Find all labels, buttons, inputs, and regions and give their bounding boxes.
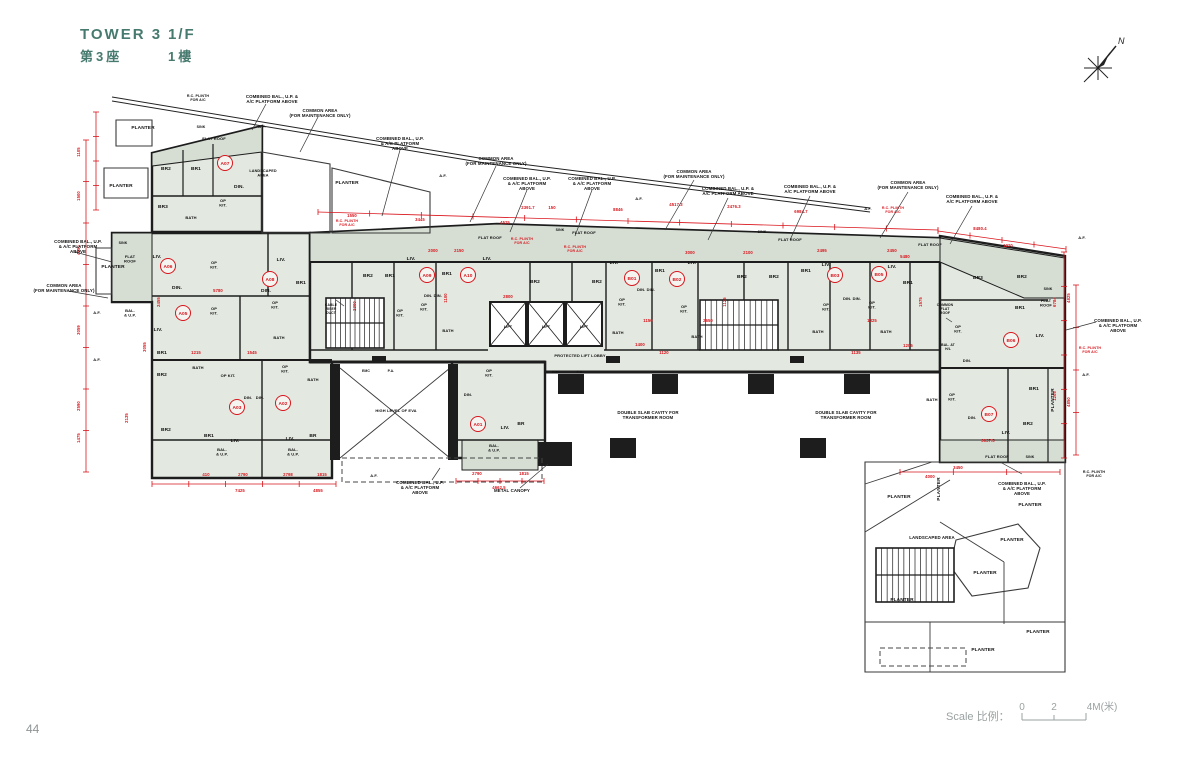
room-label: BAL.& U.P. — [216, 447, 228, 457]
unit-number-b02: B02 — [672, 277, 681, 283]
annotation-note: A.F. — [370, 473, 378, 478]
room-label: OPKIT. — [948, 392, 956, 402]
room-label: DIN. — [244, 395, 252, 400]
annotation-note: CABLERISERDUCT — [325, 303, 338, 315]
room-label: PLANTER — [1018, 502, 1042, 508]
room-label: DIN. — [172, 285, 182, 291]
room-label: BR1 — [903, 280, 913, 286]
room-label: BR3 — [973, 275, 983, 281]
room-label: EMC — [552, 370, 560, 374]
planter-outline — [116, 120, 152, 146]
room-label: DIN. — [256, 395, 264, 400]
dimension-text: 3059 — [76, 325, 81, 335]
hatched-pier — [558, 374, 584, 394]
planter-outline — [104, 168, 148, 198]
annotation-note: HIGH LEVEL OF EVA — [375, 408, 416, 413]
room-label: SINK — [758, 230, 767, 234]
page-number: 44 — [26, 722, 39, 736]
room-label: DIN. — [968, 415, 976, 420]
room-label: FLAT ROOF — [918, 242, 942, 247]
annotation-note: LANDSCAPED AREA — [909, 535, 955, 540]
room-label: OP KIT. — [221, 373, 236, 378]
dimension-text: 2300 — [352, 301, 357, 311]
scale-bar: Scale 比例： 0 2 4M(米) — [946, 700, 1164, 726]
room-label: BATH — [185, 215, 196, 220]
annotation-note: COMBINED BAL., U.P.& A/C PLATFORMABOVE — [376, 136, 424, 151]
dimension-text: 4855 — [313, 488, 323, 493]
dimension-text: 1815 — [519, 471, 529, 476]
room-label: LIV. — [501, 425, 510, 431]
room-label: DIN. — [234, 184, 244, 190]
annotation-note: A.F. — [439, 173, 447, 178]
dimension-text: 2798 — [283, 472, 293, 477]
unit-number-a03: A03 — [232, 405, 241, 411]
room-label: BR2 — [769, 274, 779, 280]
room-label: OPKIT. — [420, 302, 428, 312]
dimension-text: 1545 — [247, 350, 257, 355]
dimension-text: 2150 — [454, 248, 464, 253]
room-label: PLANTER — [1050, 388, 1056, 412]
hatched-pier — [844, 374, 870, 394]
room-label: BAL.& U.P. — [124, 308, 136, 318]
annotation-note: COMBINED BAL., U.P. &A/C PLATFORM ABOVE — [246, 94, 299, 104]
room-label: PLANTER — [1000, 537, 1024, 543]
room-label: FLAT ROOF — [778, 237, 802, 242]
annotation-note: COMMON AREA(FOR MAINTENANCE ONLY) — [877, 180, 939, 190]
scale-tick-2: 2 — [1051, 702, 1057, 713]
annotation-note: COMBINED BAL., U.P.& A/C PLATFORMABOVE — [998, 481, 1046, 496]
unit-number-a05: A05 — [178, 311, 187, 317]
room-label: BR2 — [1023, 421, 1033, 427]
dimension-text: 7425 — [235, 488, 245, 493]
hatched-pier — [330, 364, 340, 460]
room-label: FLATROOF — [1040, 298, 1052, 308]
rc-plinth-note: R.C. PLINTHFOR A/C — [882, 206, 905, 214]
room-label: PLANTER — [335, 180, 359, 186]
dimension-text: 8846 — [613, 207, 623, 212]
hatched-pier — [372, 356, 386, 363]
dimension-text: 3055 — [142, 342, 147, 352]
room-label: DIN. — [261, 288, 271, 294]
dimension-text: 1500 — [76, 191, 81, 201]
room-label: BR2 — [157, 372, 167, 378]
room-label: OPKIT. — [868, 300, 876, 310]
room-label: OPKIT. — [822, 302, 830, 312]
hatched-pier — [538, 442, 572, 466]
planter-outline — [96, 248, 112, 294]
room-label: SINK — [197, 125, 206, 129]
unit-number-a02: A02 — [278, 401, 287, 407]
room-label: BR1 — [442, 271, 452, 277]
room-label: P.A. — [577, 370, 584, 374]
dimension-text: 1550 — [347, 213, 357, 218]
annotation-note: COMBINED BAL., U.P. &A/C PLATFORM ABOVE — [784, 184, 837, 194]
room-label: BR1 — [157, 350, 167, 356]
room-label: FLATROOF — [124, 254, 136, 264]
room-label: BR2 — [161, 166, 171, 172]
dimension-text: 2450 — [887, 248, 897, 253]
annotation-note: COMBINED BAL., U.P.& A/C PLATFORMABOVE — [568, 176, 616, 191]
dimension-text: 2391.7 — [521, 205, 535, 210]
dimension-text: 1325 — [867, 318, 877, 323]
room-label: FLAT ROOF — [572, 230, 596, 235]
room-label: BATH — [812, 329, 823, 334]
room-label: BR1 — [1015, 305, 1025, 311]
annotation-note: COMBINED BAL., U.P.& A/C PLATFORMABOVE — [1094, 318, 1142, 333]
dimension-text: 2590 — [76, 401, 81, 411]
room-label: LIV. — [483, 256, 492, 262]
lifts — [490, 302, 602, 346]
room-label: OPKIT. — [281, 364, 289, 374]
annotation-note: DOUBLE SLAB CAVITY FORTRANSFORMER ROOM — [617, 410, 679, 420]
room-label: LIFT — [504, 325, 513, 329]
room-label: PLANTER — [973, 570, 997, 576]
annotation-note: A.F. — [635, 196, 643, 201]
dimension-text: 8480.4 — [973, 226, 987, 231]
room-label: BATH — [442, 328, 453, 333]
dimension-text: 410 — [202, 472, 210, 477]
planter-outline — [262, 152, 330, 233]
room-label: BR2 — [161, 427, 171, 433]
room-label: OPKIT. — [618, 297, 626, 307]
room-label: BATH — [880, 329, 891, 334]
dimension-text: 2790 — [472, 471, 482, 476]
room-label: BR1 — [385, 273, 395, 279]
dimension-text: 2100 — [743, 250, 753, 255]
room-label: FLAT ROOF — [478, 235, 502, 240]
dimension-text: 1105 — [76, 147, 81, 157]
dashed-outline — [880, 648, 966, 666]
dimension-text: 2455 — [156, 297, 161, 307]
room-label: LIFT — [580, 325, 589, 329]
dimension-text: 1475 — [76, 433, 81, 443]
room-label: EMC — [362, 369, 370, 373]
flat-roof-band — [462, 440, 538, 470]
annotation-note: A.F. — [1078, 235, 1086, 240]
room-label: BR2 — [363, 273, 373, 279]
room-label: BR — [309, 433, 317, 439]
annotation-note: COMBINED BAL., U.P.& A/C PLATFORMABOVE — [503, 176, 551, 191]
dimension-text: 1205 — [903, 343, 913, 348]
room-label: SINK — [119, 241, 128, 245]
unit-number-b05: B05 — [874, 272, 883, 278]
room-label: LIV. — [286, 436, 295, 442]
room-label: BR1 — [801, 268, 811, 274]
dimension-text: 6784 — [1052, 297, 1057, 307]
room-label: LIV. — [888, 264, 897, 270]
room-label: LIFT — [542, 325, 551, 329]
dimension-text: 5780 — [213, 288, 223, 293]
dimension-text: 6984.7 — [794, 209, 808, 214]
annotation-note: COMBINED BAL., U.P. &A/C PLATFORM ABOVE — [702, 186, 755, 196]
unit-number-b01: B01 — [627, 276, 636, 282]
room-label: OPKIT. — [680, 304, 688, 314]
dimension-text: 1815 — [317, 472, 327, 477]
unit-number-a10: A10 — [463, 273, 472, 279]
hatched-pier — [448, 364, 458, 460]
room-label: BR1 — [204, 433, 214, 439]
unit-number-a01: A01 — [473, 422, 482, 428]
dimension-text: 3000 — [685, 250, 695, 255]
unit-number-a08: A08 — [265, 277, 274, 283]
room-label: P.A. — [388, 369, 395, 373]
room-label: PLANTER — [936, 477, 942, 501]
room-label: DIN. DIN. — [637, 287, 655, 292]
room-label: OPKIT. — [210, 306, 218, 316]
room-label: DIN. DIN. — [843, 296, 861, 301]
annotation-note: A.F. — [93, 357, 101, 362]
room-label: OPKIT. — [271, 300, 279, 310]
annotation-note: COMBINED BAL., U.P.& A/C PLATFORMABOVE — [54, 239, 102, 254]
annotation-note: COMMON AREA(FOR MAINTENANCE ONLY) — [289, 108, 351, 118]
dimension-text: 2495 — [817, 248, 827, 253]
scale-tick-0: 0 — [1019, 702, 1025, 713]
dimension-text: 3450 — [953, 465, 963, 470]
dimension-text: 3037.5 — [981, 438, 995, 443]
dimension-text: 1125 — [722, 297, 727, 307]
annotation-note: A.F. — [258, 124, 266, 129]
room-label: PLANTER — [887, 494, 911, 500]
room-label: FLAT ROOF — [985, 454, 1009, 459]
scale-label: Scale 比例： — [946, 708, 1010, 724]
annotation-note: A.F. — [864, 206, 872, 211]
room-label: DIN. — [963, 358, 971, 363]
room-label: BR2 — [592, 279, 602, 285]
room-label: LIV. — [1036, 333, 1045, 339]
annotation-note: METAL CANOPY — [494, 488, 530, 493]
dimension-text: 5480 — [900, 254, 910, 259]
annotation-note: PROTECTED LIFT LOBBY — [554, 353, 606, 358]
dimension-text: 1135 — [851, 350, 861, 355]
room-label: BR1 — [655, 268, 665, 274]
annotation-note: COMMON AREA(FOR MAINTENANCE ONLY) — [663, 169, 725, 179]
room-label: BATH — [192, 365, 203, 370]
unit-number-a06: A06 — [163, 264, 172, 270]
room-label: PLANTER — [101, 264, 125, 270]
dimension-text: 2800 — [503, 294, 513, 299]
dimension-text: 4850 — [1066, 397, 1071, 407]
room-label: LIV. — [277, 257, 286, 263]
unit-number-b03: B03 — [830, 273, 839, 279]
room-label: BAL.& U.P. — [488, 443, 500, 453]
room-label: OPKIT. — [219, 198, 227, 208]
room-label: LIV. — [688, 260, 697, 266]
dimension-text: 4000 — [925, 474, 935, 479]
room-label: SINK — [556, 228, 565, 232]
room-label: BR2 — [737, 274, 747, 280]
floor-plan-page: TOWER 3 1/F 第3座 1樓 N 1550344545252391.71… — [0, 0, 1184, 757]
dimension-text: 2476.3 — [727, 204, 741, 209]
room-label: BR1 — [191, 166, 201, 172]
room-label: DIN. DIN. — [424, 293, 442, 298]
scale-tick-4m: 4M(米) — [1086, 700, 1117, 713]
room-label: FLAT ROOF — [202, 136, 226, 141]
rc-plinth-note: R.C. PLINTHFOR A/C — [336, 219, 359, 227]
annotation-note: R.C. PLINTHFOR A/C — [187, 94, 210, 102]
room-label: OPKIT. — [210, 260, 218, 270]
dimension-text: 2650 — [703, 318, 713, 323]
room-label: SINK — [1044, 287, 1053, 291]
unit-number-a07: A07 — [220, 161, 229, 167]
room-label: BATH — [612, 330, 623, 335]
hatched-pier — [652, 374, 678, 394]
room-label: BR2 — [530, 279, 540, 285]
dimension-text: 150 — [548, 205, 556, 210]
annotation-note: R.C. PLINTHFOR A/C — [1083, 470, 1106, 478]
room-label: BR3 — [158, 204, 168, 210]
room-label: PLANTER — [1026, 629, 1050, 635]
room-label: OPKIT. — [954, 324, 962, 334]
rc-plinth-note: R.C. PLINTHFOR A/C — [1079, 346, 1102, 354]
dimension-text: 1575 — [918, 297, 923, 307]
unit-number-b06: B06 — [1006, 338, 1015, 344]
annotation-note: COMBINED BAL., U.P.& A/C PLATFORMABOVE — [396, 480, 444, 495]
dimension-text: 1220 — [1003, 243, 1013, 248]
room-label: BATH — [691, 334, 702, 339]
dimension-text: 2000 — [428, 248, 438, 253]
dimension-text: 2135 — [124, 413, 129, 423]
dimension-text: 1100 — [443, 293, 448, 303]
room-label: LIV. — [1002, 430, 1011, 436]
annotation-note: A.F. — [1082, 372, 1090, 377]
hatched-pier — [790, 356, 804, 363]
unit-number-a09: A09 — [422, 273, 431, 279]
dimension-text: 4825 — [1066, 293, 1071, 303]
room-label: LIV. — [822, 262, 831, 268]
annotation-note: A.F. — [93, 310, 101, 315]
room-label: PLANTER — [971, 647, 995, 653]
room-label: LIV. — [610, 260, 619, 266]
room-label: BATH — [273, 335, 284, 340]
dimension-text: 1400 — [635, 342, 645, 347]
dimension-text: 2790 — [238, 472, 248, 477]
annotation-note: COMBINED BAL., U.P. &A/C PLATFORM ABOVE — [946, 194, 999, 204]
room-label: PLANTER — [131, 125, 155, 131]
hatched-pier — [606, 356, 620, 363]
flat-roof-band — [310, 224, 940, 262]
room-label: BATH — [307, 377, 318, 382]
room-label: BATH — [926, 397, 937, 402]
scale-ruler: 0 2 4M(米) — [1014, 700, 1164, 726]
room-label: LIV. — [407, 256, 416, 262]
room-label: LIV. — [154, 327, 163, 333]
dimension-text: 1120 — [659, 350, 669, 355]
annotation-note: DOUBLE SLAB CAVITY FORTRANSFORMER ROOM — [815, 410, 877, 420]
dimension-text: 1215 — [191, 350, 201, 355]
unit-number-b07: B07 — [984, 412, 993, 418]
room-label: PLANTER — [109, 183, 133, 189]
dimension-text: 3445 — [415, 217, 425, 222]
room-label: BR2 — [1017, 274, 1027, 280]
room-label: OPKIT. — [485, 368, 493, 378]
room-label: SINK — [1026, 455, 1035, 459]
room-label: LIV. — [153, 254, 162, 260]
room-label: LIV. — [231, 438, 240, 444]
room-label: BAL.& U.P. — [287, 447, 299, 457]
room-label: BR1 — [1029, 386, 1039, 392]
hatched-pier — [748, 374, 774, 394]
room-label: PLANTER — [890, 597, 914, 603]
planter-outline — [950, 524, 1040, 596]
room-label: OPKIT. — [396, 308, 404, 318]
dimension-text: 1150 — [643, 318, 653, 323]
hatched-pier — [800, 438, 826, 458]
dimension-text: 4525 — [500, 220, 510, 225]
room-label: DIN. — [464, 392, 472, 397]
room-label: BR — [517, 421, 525, 427]
room-label: BR1 — [296, 280, 306, 286]
hatched-pier — [610, 438, 636, 458]
floor-plan-drawing: 1550344545252391.715088464517.32476.3698… — [0, 0, 1184, 757]
